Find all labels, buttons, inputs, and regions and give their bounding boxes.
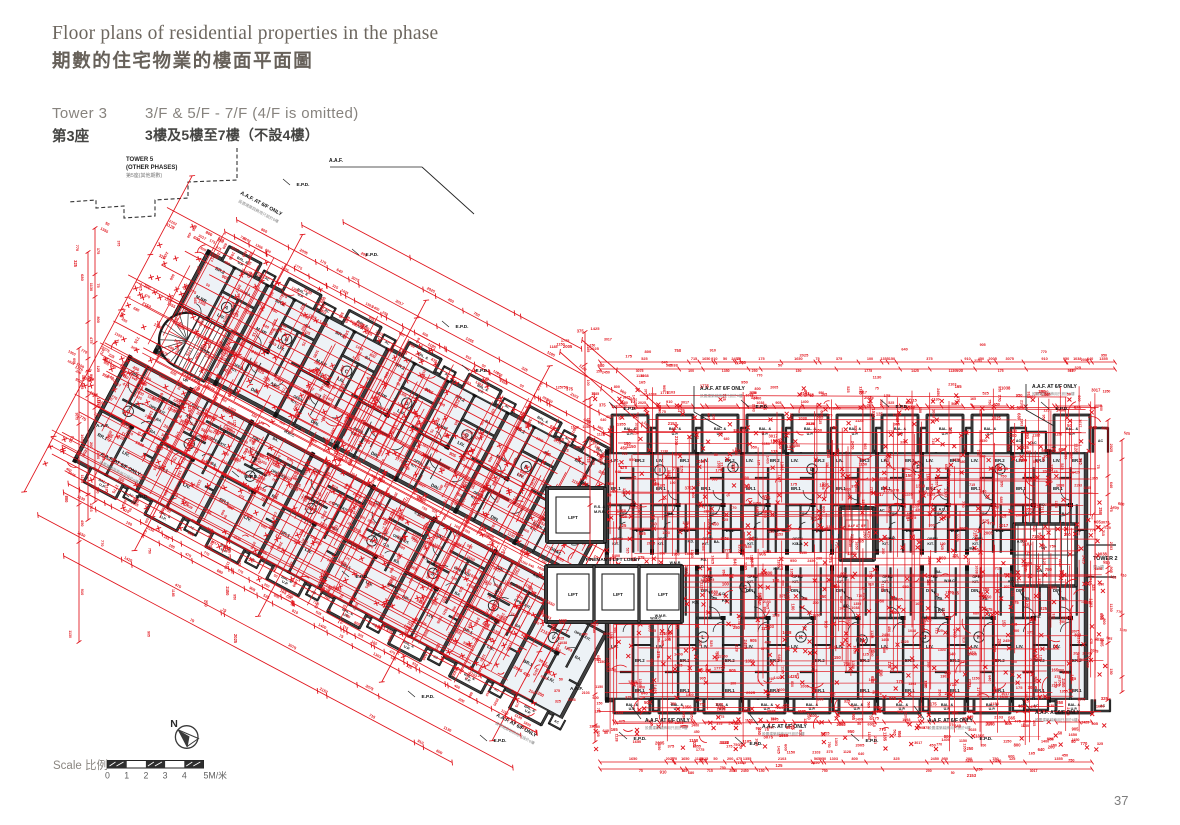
svg-text:3075: 3075 — [699, 759, 707, 763]
svg-text:1150: 1150 — [114, 332, 123, 339]
svg-text:BAL. &: BAL. & — [984, 427, 997, 431]
svg-text:50: 50 — [1094, 637, 1099, 642]
svg-text:910: 910 — [593, 450, 599, 454]
svg-text:1038: 1038 — [67, 471, 76, 478]
svg-text:600: 600 — [1008, 754, 1014, 758]
svg-text:450: 450 — [228, 391, 232, 397]
svg-text:P.D.: P.D. — [688, 539, 695, 543]
svg-text:905: 905 — [729, 668, 737, 673]
svg-text:1400: 1400 — [674, 652, 684, 657]
svg-text:BR.1: BR.1 — [1072, 688, 1082, 693]
svg-text:U.P.: U.P. — [854, 707, 861, 711]
svg-text:1303: 1303 — [622, 488, 627, 497]
svg-text:1150: 1150 — [859, 462, 867, 467]
svg-text:200: 200 — [981, 744, 987, 748]
svg-text:565: 565 — [892, 729, 897, 736]
svg-text:905: 905 — [1091, 721, 1098, 726]
svg-text:800: 800 — [645, 349, 652, 354]
svg-text:BR.2: BR.2 — [860, 658, 870, 663]
svg-text:1400: 1400 — [776, 688, 784, 692]
svg-text:2103: 2103 — [1051, 683, 1060, 688]
svg-text:250: 250 — [1056, 700, 1064, 705]
svg-text:800: 800 — [852, 757, 858, 761]
svg-text:R.S. &: R.S. & — [594, 505, 605, 509]
svg-text:2103: 2103 — [667, 391, 675, 395]
svg-text:680: 680 — [1084, 600, 1092, 605]
svg-text:BAL. &: BAL. & — [714, 427, 727, 431]
svg-text:LIV.: LIV. — [791, 458, 798, 463]
svg-text:2153: 2153 — [668, 421, 678, 426]
svg-text:2: 2 — [143, 771, 148, 781]
svg-text:2153: 2153 — [1074, 483, 1082, 487]
svg-text:600: 600 — [200, 246, 207, 252]
svg-text:680: 680 — [973, 612, 979, 616]
svg-text:2103: 2103 — [570, 391, 581, 400]
svg-text:3075: 3075 — [762, 549, 771, 554]
svg-text:1355: 1355 — [604, 460, 612, 464]
svg-text:1650: 1650 — [80, 434, 85, 443]
svg-text:1425: 1425 — [820, 483, 830, 488]
svg-text:1650: 1650 — [887, 504, 892, 513]
svg-text:E.P.D.: E.P.D. — [366, 252, 379, 257]
svg-text:75: 75 — [1027, 551, 1031, 555]
svg-text:2153: 2153 — [836, 722, 846, 727]
svg-text:A.D.: A.D. — [796, 542, 803, 546]
svg-text:750: 750 — [988, 399, 992, 405]
svg-text:R.S.: R.S. — [692, 600, 699, 604]
svg-text:600: 600 — [593, 696, 599, 700]
svg-text:200: 200 — [813, 601, 819, 605]
svg-text:K: K — [799, 635, 803, 641]
svg-text:800: 800 — [614, 385, 620, 389]
svg-text:1150: 1150 — [680, 465, 684, 473]
svg-text:770: 770 — [1080, 741, 1088, 746]
svg-text:75: 75 — [875, 386, 879, 390]
svg-text:375: 375 — [716, 722, 722, 726]
svg-text:325: 325 — [811, 662, 815, 668]
svg-text:950: 950 — [1033, 677, 1038, 685]
svg-text:910: 910 — [710, 348, 716, 352]
svg-text:50: 50 — [714, 453, 718, 457]
svg-text:715: 715 — [691, 357, 697, 361]
svg-text:950: 950 — [629, 457, 636, 462]
svg-text:AAF AT 6/F: AAF AT 6/F — [848, 524, 866, 528]
svg-text:1425: 1425 — [340, 288, 349, 295]
svg-text:50: 50 — [1058, 730, 1063, 735]
svg-text:250: 250 — [944, 515, 950, 519]
svg-text:1185: 1185 — [682, 521, 690, 525]
svg-text:1775: 1775 — [717, 715, 725, 719]
svg-text:E.P.D.: E.P.D. — [624, 406, 637, 411]
svg-text:325: 325 — [733, 429, 739, 433]
svg-text:165: 165 — [681, 769, 687, 773]
svg-text:P.D.: P.D. — [1034, 615, 1041, 619]
svg-text:950: 950 — [1025, 432, 1030, 440]
svg-text:800: 800 — [96, 316, 101, 323]
svg-text:2450: 2450 — [728, 720, 738, 725]
svg-text:770: 770 — [80, 347, 88, 354]
svg-text:325: 325 — [73, 260, 78, 268]
svg-text:715: 715 — [931, 438, 935, 444]
svg-text:165: 165 — [611, 727, 619, 732]
svg-text:P.D.: P.D. — [1039, 503, 1046, 507]
svg-text:250: 250 — [203, 600, 208, 608]
svg-text:1775: 1775 — [96, 399, 101, 409]
svg-text:375: 375 — [656, 651, 661, 659]
svg-text:640: 640 — [954, 724, 962, 729]
svg-text:1130: 1130 — [761, 626, 771, 631]
svg-text:450: 450 — [80, 520, 85, 527]
svg-text:A.A.F. AT 6/F ONLY: A.A.F. AT 6/F ONLY — [1035, 710, 1080, 716]
svg-text:2450: 2450 — [1003, 638, 1013, 643]
svg-text:E.P.D.: E.P.D. — [456, 324, 469, 329]
svg-text:LIV.: LIV. — [971, 458, 978, 463]
svg-text:600: 600 — [169, 273, 176, 280]
svg-text:3017: 3017 — [395, 298, 405, 306]
svg-text:525: 525 — [641, 357, 647, 361]
svg-text:1355: 1355 — [254, 243, 263, 250]
svg-text:770: 770 — [856, 594, 862, 598]
svg-text:50: 50 — [519, 383, 524, 388]
svg-text:525: 525 — [1074, 406, 1082, 411]
svg-text:715: 715 — [969, 483, 975, 487]
svg-text:2103: 2103 — [985, 722, 995, 727]
svg-text:2103: 2103 — [1109, 542, 1113, 550]
svg-text:2153: 2153 — [974, 359, 982, 363]
svg-text:715: 715 — [667, 720, 673, 724]
svg-text:1425: 1425 — [732, 448, 742, 453]
svg-text:1150: 1150 — [848, 539, 852, 547]
svg-text:1303: 1303 — [89, 503, 94, 512]
svg-text:1650: 1650 — [779, 733, 789, 738]
svg-text:450: 450 — [705, 669, 711, 673]
svg-text:640: 640 — [1038, 747, 1046, 752]
svg-text:A.D.: A.D. — [1008, 580, 1015, 584]
svg-text:E.P.D.: E.P.D. — [356, 574, 369, 579]
svg-text:450: 450 — [929, 743, 936, 748]
svg-text:1425: 1425 — [1081, 555, 1086, 565]
svg-text:50: 50 — [104, 220, 110, 226]
svg-text:1650: 1650 — [855, 541, 859, 549]
svg-text:200: 200 — [854, 425, 858, 431]
svg-text:525: 525 — [811, 669, 817, 673]
svg-text:680: 680 — [999, 496, 1004, 503]
svg-text:175: 175 — [209, 238, 216, 244]
svg-text:1355: 1355 — [1060, 689, 1068, 693]
svg-text:1303: 1303 — [787, 445, 795, 449]
svg-text:640: 640 — [661, 360, 667, 364]
svg-text:200: 200 — [781, 580, 785, 586]
svg-text:2153: 2153 — [775, 532, 783, 536]
svg-text:950: 950 — [1101, 354, 1107, 358]
svg-text:BA.: BA. — [668, 512, 674, 516]
svg-text:175: 175 — [96, 248, 101, 255]
svg-text:1038: 1038 — [559, 641, 567, 645]
svg-text:950: 950 — [790, 558, 797, 563]
svg-text:1355: 1355 — [935, 477, 940, 486]
svg-text:640: 640 — [733, 559, 738, 567]
svg-text:1128: 1128 — [699, 582, 703, 590]
svg-text:565: 565 — [766, 603, 770, 609]
svg-text:2450: 2450 — [741, 769, 749, 773]
svg-text:1128: 1128 — [843, 750, 851, 754]
svg-text:325: 325 — [893, 757, 899, 761]
svg-text:1150: 1150 — [627, 444, 637, 449]
svg-text:910: 910 — [895, 415, 900, 422]
svg-text:1038: 1038 — [559, 619, 567, 623]
svg-text:565: 565 — [1044, 392, 1050, 396]
svg-text:3017: 3017 — [681, 400, 689, 404]
svg-text:1350: 1350 — [813, 427, 823, 432]
svg-text:2450: 2450 — [993, 758, 1002, 763]
svg-text:680: 680 — [638, 527, 645, 532]
svg-text:2025: 2025 — [992, 416, 1002, 421]
svg-text:1400: 1400 — [686, 693, 694, 697]
svg-text:E.P.D.: E.P.D. — [756, 404, 769, 409]
svg-text:4: 4 — [182, 771, 187, 781]
svg-text:1425: 1425 — [911, 369, 919, 373]
svg-text:2103: 2103 — [582, 691, 590, 695]
svg-text:640: 640 — [901, 348, 907, 352]
svg-text:2103: 2103 — [846, 618, 850, 626]
svg-text:165: 165 — [1052, 470, 1058, 474]
svg-text:BA.: BA. — [712, 597, 718, 601]
svg-text:125: 125 — [1110, 575, 1117, 580]
svg-text:165: 165 — [926, 473, 931, 481]
svg-text:BR.2: BR.2 — [680, 658, 690, 663]
svg-text:BR.1: BR.1 — [1016, 486, 1026, 491]
svg-text:375: 375 — [1037, 578, 1041, 584]
svg-text:640: 640 — [615, 470, 621, 474]
svg-text:2153: 2153 — [319, 686, 330, 695]
svg-text:1038: 1038 — [1001, 386, 1011, 391]
svg-text:1650: 1650 — [762, 442, 770, 446]
svg-text:P.D.: P.D. — [722, 599, 729, 603]
svg-text:165: 165 — [821, 392, 827, 396]
svg-text:905: 905 — [1109, 567, 1113, 573]
svg-text:905: 905 — [894, 422, 900, 426]
svg-text:2450: 2450 — [811, 760, 820, 765]
svg-text:1185: 1185 — [777, 475, 781, 483]
svg-text:100: 100 — [867, 357, 873, 361]
svg-text:1150: 1150 — [233, 420, 237, 428]
svg-text:1425: 1425 — [123, 555, 134, 564]
svg-text:A.D.: A.D. — [843, 604, 850, 608]
svg-text:2103: 2103 — [1088, 425, 1098, 430]
svg-text:1185: 1185 — [882, 732, 887, 742]
svg-text:750: 750 — [147, 548, 151, 554]
svg-text:BR.2: BR.2 — [995, 458, 1005, 463]
svg-text:905: 905 — [777, 438, 782, 446]
svg-text:1425: 1425 — [711, 555, 716, 565]
svg-text:525: 525 — [741, 515, 745, 521]
svg-text:1355: 1355 — [738, 544, 742, 552]
svg-text:2005: 2005 — [917, 726, 925, 730]
svg-text:75: 75 — [639, 769, 643, 773]
svg-text:475: 475 — [1030, 705, 1036, 709]
svg-text:800: 800 — [64, 496, 69, 504]
svg-text:450: 450 — [582, 633, 588, 637]
svg-text:770: 770 — [1026, 478, 1032, 482]
svg-text:950: 950 — [1016, 393, 1023, 398]
svg-text:Scale 比例: Scale 比例 — [53, 758, 108, 772]
svg-text:1130: 1130 — [660, 449, 668, 453]
svg-text:750: 750 — [1000, 474, 1007, 479]
svg-text:125: 125 — [1039, 655, 1043, 661]
svg-text:1350: 1350 — [689, 712, 693, 720]
svg-text:75: 75 — [596, 708, 600, 712]
svg-text:250: 250 — [739, 360, 747, 365]
svg-text:1425: 1425 — [631, 395, 635, 403]
svg-text:100: 100 — [586, 380, 590, 386]
svg-text:375: 375 — [668, 744, 675, 749]
svg-text:165: 165 — [926, 661, 930, 667]
svg-text:910: 910 — [1041, 357, 1047, 361]
svg-text:905: 905 — [851, 713, 856, 721]
svg-text:800: 800 — [1013, 628, 1020, 633]
svg-text:DIN.: DIN. — [971, 588, 980, 593]
svg-text:525: 525 — [1032, 526, 1036, 532]
svg-text:640: 640 — [602, 728, 609, 733]
svg-text:BR.2: BR.2 — [635, 458, 645, 463]
svg-text:910: 910 — [484, 690, 490, 697]
svg-text:250: 250 — [1064, 532, 1072, 537]
svg-text:770: 770 — [936, 743, 942, 747]
svg-text:1185: 1185 — [546, 349, 557, 358]
svg-text:1038: 1038 — [555, 437, 565, 442]
svg-text:1650: 1650 — [1096, 703, 1105, 708]
svg-text:1038: 1038 — [974, 565, 978, 573]
svg-text:325: 325 — [1097, 742, 1103, 746]
svg-text:750: 750 — [561, 384, 568, 389]
svg-text:1775: 1775 — [700, 383, 710, 388]
svg-text:1775: 1775 — [828, 554, 833, 564]
svg-text:150: 150 — [1109, 668, 1113, 674]
svg-text:1425: 1425 — [1081, 721, 1089, 725]
svg-text:75: 75 — [662, 410, 666, 414]
svg-text:325: 325 — [1040, 606, 1048, 611]
svg-text:1038: 1038 — [931, 409, 936, 419]
svg-text:1130: 1130 — [1021, 724, 1029, 728]
svg-text:640: 640 — [858, 752, 864, 756]
svg-text:950: 950 — [1006, 444, 1011, 452]
svg-text:175: 175 — [726, 744, 732, 748]
svg-text:175: 175 — [1027, 630, 1034, 635]
svg-text:1303: 1303 — [372, 651, 383, 660]
svg-text:2005: 2005 — [770, 385, 778, 389]
svg-text:715: 715 — [133, 336, 141, 345]
svg-text:BA.: BA. — [714, 540, 720, 544]
svg-text:3017: 3017 — [1030, 769, 1038, 773]
svg-text:600: 600 — [868, 723, 874, 727]
svg-text:325: 325 — [844, 699, 851, 704]
svg-text:800: 800 — [756, 727, 762, 731]
svg-text:1355: 1355 — [993, 510, 997, 518]
svg-text:715: 715 — [910, 398, 917, 403]
svg-text:A.D.: A.D. — [939, 508, 946, 512]
svg-text:2450: 2450 — [979, 439, 987, 443]
svg-text:1350: 1350 — [67, 349, 76, 356]
svg-text:2025: 2025 — [731, 463, 735, 471]
svg-text:1130: 1130 — [76, 494, 86, 502]
svg-text:125: 125 — [771, 449, 779, 454]
svg-text:565: 565 — [1106, 636, 1113, 641]
svg-text:150: 150 — [905, 473, 913, 478]
svg-text:75: 75 — [606, 481, 611, 486]
svg-text:1038: 1038 — [908, 629, 916, 633]
svg-text:165: 165 — [967, 715, 973, 719]
svg-text:2025: 2025 — [927, 556, 931, 564]
svg-text:250: 250 — [752, 369, 758, 373]
svg-text:1425: 1425 — [630, 505, 638, 509]
svg-text:2005: 2005 — [655, 740, 665, 745]
svg-text:600: 600 — [1025, 719, 1031, 723]
svg-text:750: 750 — [227, 554, 231, 560]
svg-text:165: 165 — [993, 686, 997, 692]
svg-text:1775: 1775 — [976, 687, 981, 697]
svg-text:1425: 1425 — [139, 283, 143, 291]
svg-text:1350: 1350 — [790, 568, 795, 577]
svg-text:2005: 2005 — [299, 247, 310, 256]
svg-text:2103: 2103 — [674, 436, 679, 446]
svg-text:910: 910 — [961, 637, 965, 643]
svg-text:770: 770 — [992, 645, 997, 653]
svg-text:640: 640 — [875, 656, 880, 664]
svg-text:640: 640 — [949, 652, 957, 657]
svg-text:375: 375 — [625, 695, 631, 699]
svg-text:200: 200 — [89, 442, 94, 449]
svg-text:950: 950 — [848, 729, 856, 734]
svg-text:1775: 1775 — [761, 646, 770, 651]
svg-text:250: 250 — [966, 746, 974, 751]
svg-text:200: 200 — [727, 757, 733, 761]
svg-text:50: 50 — [778, 363, 782, 368]
svg-text:2025: 2025 — [901, 640, 909, 644]
svg-text:125: 125 — [619, 523, 627, 528]
svg-text:325: 325 — [751, 395, 758, 400]
svg-text:E.P.D.: E.P.D. — [980, 736, 993, 741]
svg-text:LIV.: LIV. — [611, 458, 618, 463]
svg-text:165: 165 — [1029, 751, 1036, 756]
svg-text:175: 175 — [930, 702, 938, 707]
svg-text:LIV.: LIV. — [971, 644, 978, 649]
svg-text:3017: 3017 — [604, 337, 612, 341]
svg-text:1130: 1130 — [1119, 628, 1127, 633]
svg-text:150: 150 — [978, 410, 982, 416]
svg-text:680: 680 — [133, 306, 140, 313]
svg-text:1038: 1038 — [1098, 552, 1108, 557]
svg-text:BA.: BA. — [935, 570, 941, 574]
svg-text:2103: 2103 — [237, 558, 241, 566]
svg-text:1038: 1038 — [871, 408, 876, 418]
svg-text:AC: AC — [1098, 439, 1104, 443]
svg-text:475: 475 — [184, 551, 193, 559]
svg-text:375: 375 — [926, 357, 932, 361]
svg-text:E.P.D.: E.P.D. — [750, 741, 763, 746]
svg-text:750: 750 — [699, 702, 705, 706]
svg-text:5M/米: 5M/米 — [204, 770, 228, 781]
svg-text:0: 0 — [105, 771, 110, 781]
svg-text:75: 75 — [1096, 464, 1100, 468]
svg-text:750: 750 — [231, 302, 235, 308]
svg-text:1303: 1303 — [908, 682, 916, 686]
svg-text:1650: 1650 — [869, 678, 877, 682]
svg-text:50: 50 — [1046, 697, 1050, 701]
svg-text:50: 50 — [833, 425, 838, 430]
svg-text:150: 150 — [889, 357, 895, 361]
svg-text:750: 750 — [720, 766, 726, 770]
svg-text:800: 800 — [822, 506, 827, 513]
